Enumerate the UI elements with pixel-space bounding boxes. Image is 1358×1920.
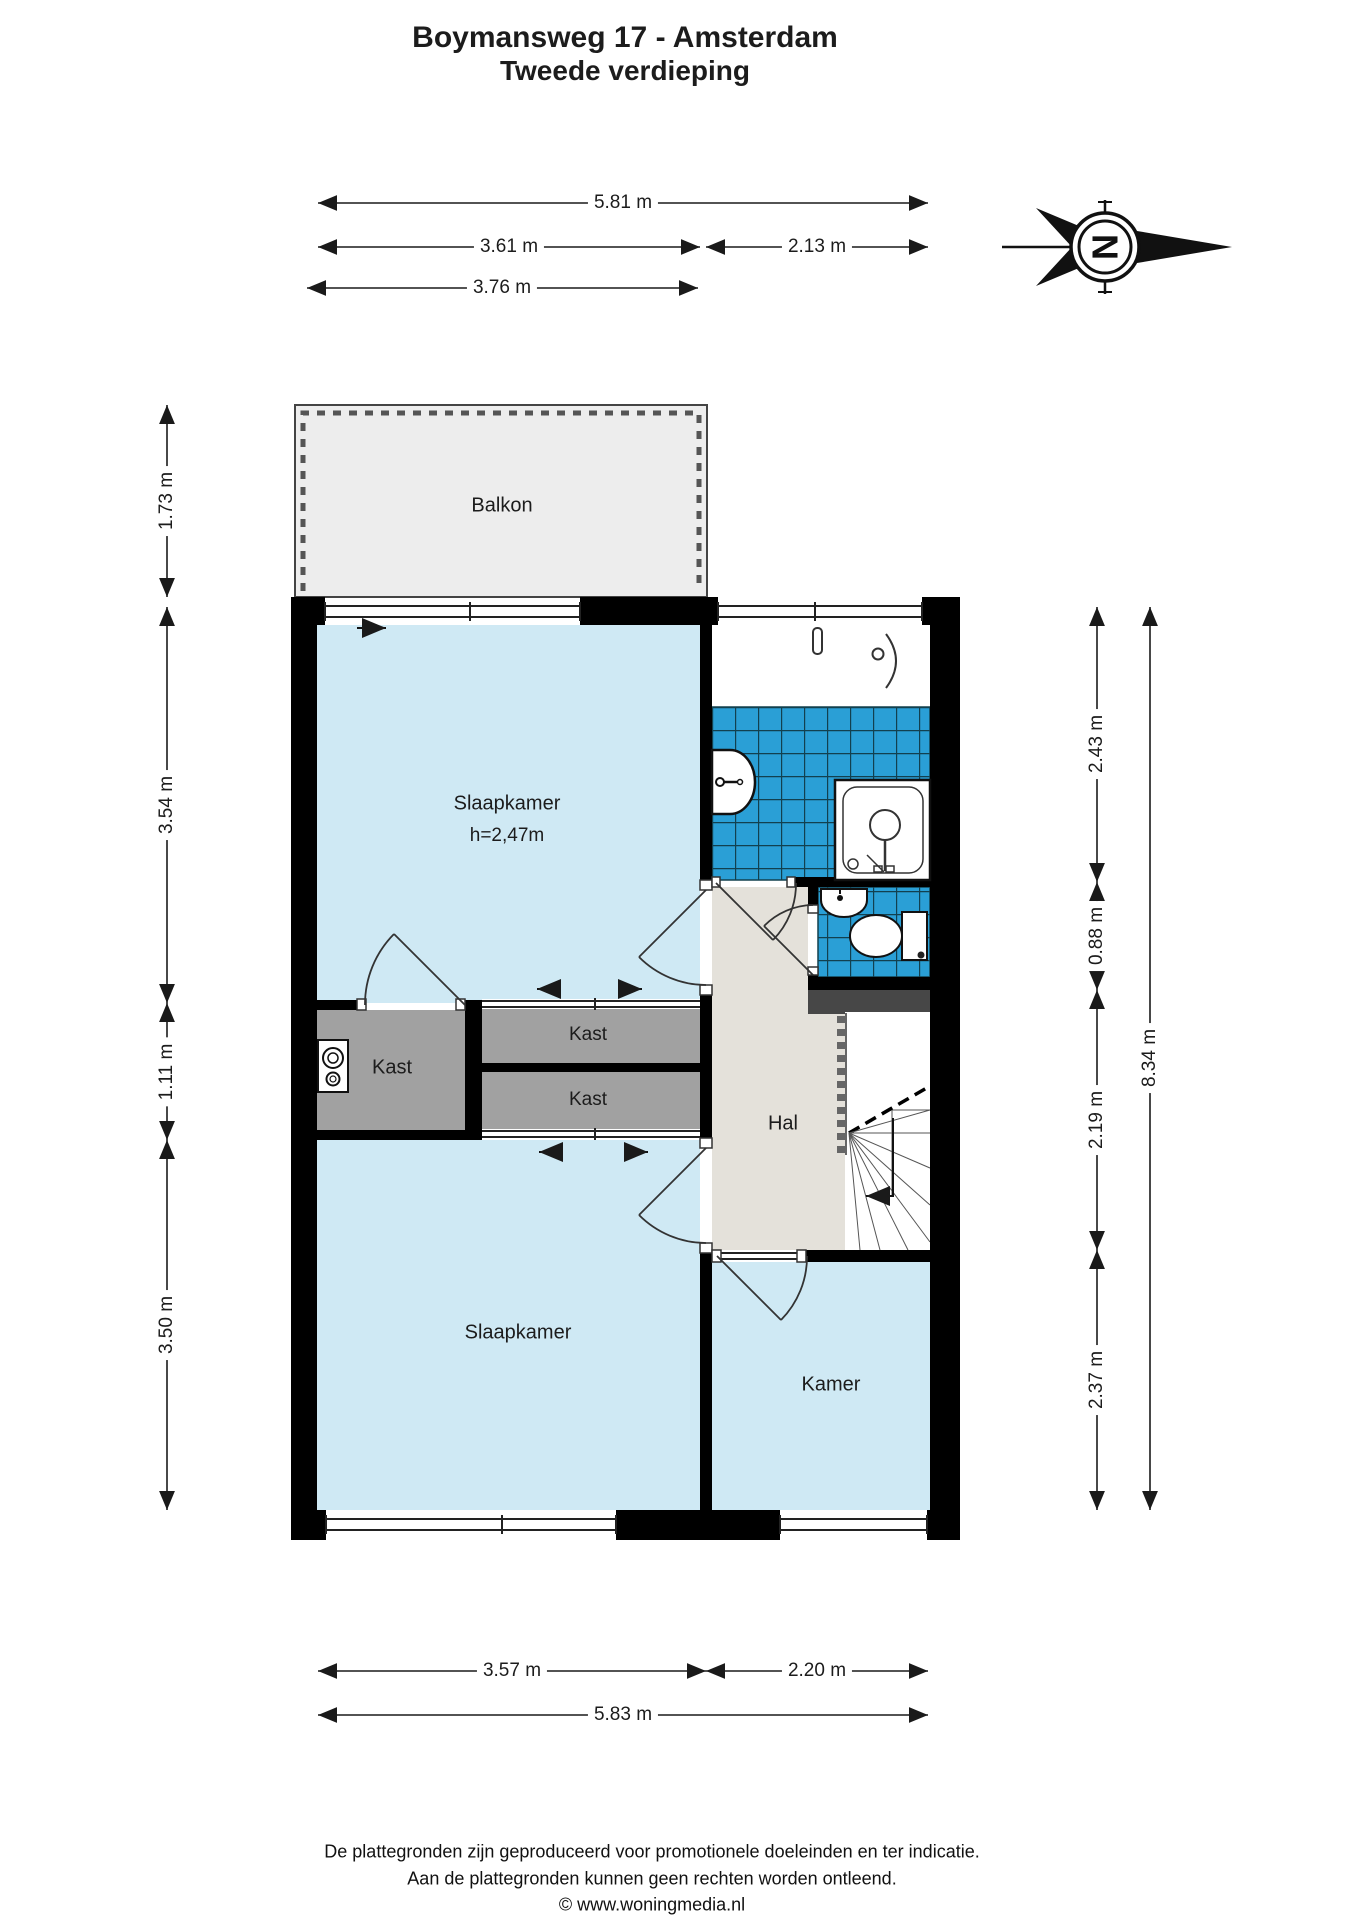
room-fills bbox=[295, 405, 930, 1510]
dim-top-right: 2.13 m bbox=[782, 236, 852, 258]
compass-icon: N bbox=[1002, 200, 1232, 294]
dim-bottom-total: 5.83 m bbox=[588, 1704, 658, 1726]
dim-right-hal: 2.19 m bbox=[1086, 1085, 1108, 1155]
shower-symbol bbox=[835, 780, 930, 880]
room-label-slaapkamer-onder: Slaapkamer bbox=[465, 1322, 572, 1345]
footer-disclaimer-2: Aan de plattegronden kunnen geen rechten… bbox=[407, 1869, 896, 1890]
room-label-hoogte: h=2,47m bbox=[470, 825, 544, 847]
dim-right-badkamer: 2.43 m bbox=[1086, 709, 1108, 779]
boiler-symbol bbox=[318, 1040, 348, 1092]
toilet-symbol bbox=[850, 912, 927, 960]
page-title: Boymansweg 17 - Amsterdam bbox=[412, 21, 838, 55]
dim-bottom-right: 2.20 m bbox=[782, 1660, 852, 1682]
dim-left-kast: 1.11 m bbox=[156, 1038, 178, 1107]
dim-right-wc: 0.88 m bbox=[1086, 901, 1108, 971]
room-label-kast-links: Kast bbox=[372, 1057, 412, 1080]
page-subtitle: Tweede verdieping bbox=[500, 55, 750, 87]
dim-bottom-left: 3.57 m bbox=[477, 1660, 547, 1682]
room-label-slaapkamer-boven: Slaapkamer bbox=[454, 793, 561, 816]
dim-left-slaapkamer1: 3.54 m bbox=[156, 770, 178, 840]
footer-copyright: © www.woningmedia.nl bbox=[559, 1895, 745, 1916]
dim-top-total: 5.81 m bbox=[588, 192, 658, 214]
wc-sink-symbol bbox=[821, 889, 867, 917]
dim-left-balkon: 1.73 m bbox=[156, 466, 178, 536]
dim-top-left: 3.61 m bbox=[474, 236, 544, 258]
floorplan-drawing: N bbox=[0, 0, 1358, 1920]
dim-left-slaapkamer2: 3.50 m bbox=[156, 1290, 178, 1360]
floorplan-page: N Boymansweg 17 - Amsterdam Tweede verdi… bbox=[0, 0, 1358, 1920]
dim-right-kamer: 2.37 m bbox=[1086, 1345, 1108, 1415]
footer-disclaimer-1: De plattegronden zijn geproduceerd voor … bbox=[324, 1842, 979, 1863]
room-label-kamer: Kamer bbox=[802, 1374, 861, 1397]
dim-right-total: 8.34 m bbox=[1139, 1023, 1161, 1093]
sink-symbol bbox=[712, 750, 755, 814]
room-label-kast-boven: Kast bbox=[569, 1024, 607, 1046]
room-label-hal: Hal bbox=[768, 1113, 798, 1136]
radiator-symbol bbox=[813, 628, 822, 654]
koof-area bbox=[808, 990, 930, 1014]
dim-top-balkon: 3.76 m bbox=[467, 277, 537, 299]
room-label-kast-onder: Kast bbox=[569, 1089, 607, 1111]
room-label-balkon: Balkon bbox=[471, 495, 532, 518]
compass-letter: N bbox=[1085, 234, 1126, 260]
